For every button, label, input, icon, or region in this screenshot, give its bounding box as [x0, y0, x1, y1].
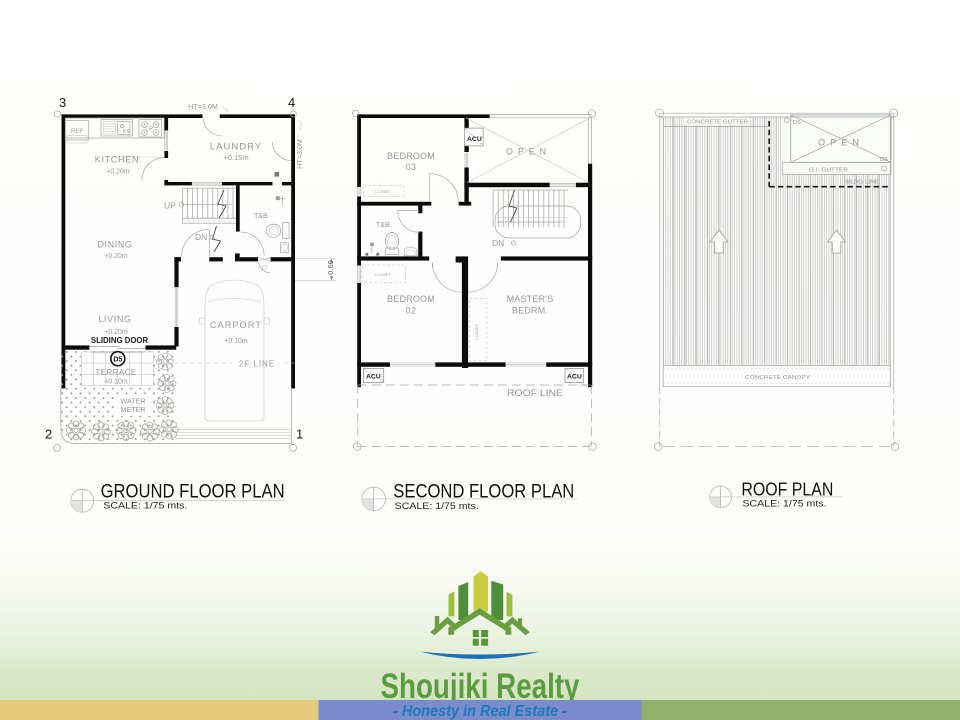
- svg-text:CLOSET: CLOSET: [375, 273, 392, 277]
- svg-text:BLDG LINE: BLDG LINE: [846, 180, 879, 186]
- svg-text:ACU: ACU: [366, 374, 381, 381]
- svg-text:REF: REF: [71, 129, 83, 135]
- svg-text:2F LINE: 2F LINE: [239, 360, 275, 369]
- svg-text:DINING: DINING: [97, 240, 132, 250]
- svg-text:DS: DS: [880, 157, 888, 163]
- svg-text:SCALE: 1/75 mts.: SCALE: 1/75 mts.: [743, 499, 827, 509]
- svg-text:LIVING: LIVING: [98, 314, 131, 324]
- svg-text:SECOND FLOOR PLAN: SECOND FLOOR PLAN: [393, 482, 574, 503]
- svg-text:CLOSET: CLOSET: [375, 190, 392, 194]
- svg-text:BEDROOM: BEDROOM: [387, 294, 435, 304]
- svg-text:CONCRETE GUTTER: CONCRETE GUTTER: [687, 120, 748, 126]
- svg-text:ROOF PLAN: ROOF PLAN: [741, 480, 833, 500]
- svg-text:LAUNDRY: LAUNDRY: [210, 142, 262, 153]
- svg-text:T&B: T&B: [376, 222, 390, 229]
- svg-text:CARPORT: CARPORT: [210, 320, 262, 330]
- svg-text:KITCHEN: KITCHEN: [95, 155, 139, 165]
- svg-text:R: R: [149, 126, 153, 132]
- svg-text:G.I. GUTTER: G.I. GUTTER: [809, 168, 848, 174]
- svg-text:DS: DS: [793, 120, 801, 126]
- svg-text:MASTER'S: MASTER'S: [507, 294, 554, 304]
- svg-text:ACU: ACU: [467, 136, 482, 143]
- svg-text:ACU: ACU: [567, 374, 582, 381]
- svg-text:3: 3: [59, 95, 66, 110]
- svg-text:+0.20m: +0.20m: [104, 329, 128, 336]
- svg-text:+0.10m: +0.10m: [224, 338, 248, 345]
- svg-text:D5: D5: [113, 356, 122, 363]
- svg-text:- Honesty in Real Estate -: - Honesty in Real Estate -: [393, 703, 567, 720]
- svg-text:HT=3.0M: HT=3.0M: [295, 139, 304, 169]
- svg-text:CONCRETE CANOPY: CONCRETE CANOPY: [745, 375, 810, 381]
- svg-text:BEDROOM: BEDROOM: [387, 151, 435, 161]
- svg-text:OPEN: OPEN: [818, 138, 864, 148]
- svg-text:+0.10m: +0.10m: [104, 379, 128, 386]
- svg-text:GROUND FLOOR PLAN: GROUND FLOOR PLAN: [101, 482, 285, 503]
- svg-text:+0.20m: +0.20m: [106, 169, 130, 176]
- svg-text:1: 1: [296, 427, 303, 442]
- svg-text:SLIDING DOOR: SLIDING DOOR: [91, 336, 149, 345]
- svg-text:METER: METER: [120, 405, 145, 414]
- svg-text:DN: DN: [195, 232, 207, 242]
- svg-text:SCALE: 1/75 mts.: SCALE: 1/75 mts.: [103, 501, 187, 511]
- svg-text:BEDRM.: BEDRM.: [512, 306, 548, 316]
- svg-text:2: 2: [45, 427, 52, 442]
- svg-text:KS: KS: [123, 129, 130, 135]
- svg-text:+0.15m: +0.15m: [223, 153, 248, 162]
- svg-text:SCALE: 1/75 mts.: SCALE: 1/75 mts.: [395, 501, 479, 511]
- svg-text:OPEN: OPEN: [506, 147, 551, 157]
- svg-text:HT=3.0M: HT=3.0M: [188, 102, 218, 111]
- svg-text:+0.20m: +0.20m: [104, 253, 128, 260]
- svg-text:T&B: T&B: [254, 213, 268, 220]
- svg-text:02: 02: [405, 306, 416, 316]
- svg-text:ROOF LINE: ROOF LINE: [507, 388, 563, 398]
- svg-text:03: 03: [405, 162, 416, 172]
- svg-text:DN: DN: [492, 238, 504, 248]
- svg-text:CLOSET: CLOSET: [475, 323, 479, 340]
- svg-text:TERRACE: TERRACE: [95, 368, 136, 377]
- svg-text:UP: UP: [164, 201, 176, 211]
- svg-text:4: 4: [288, 95, 295, 110]
